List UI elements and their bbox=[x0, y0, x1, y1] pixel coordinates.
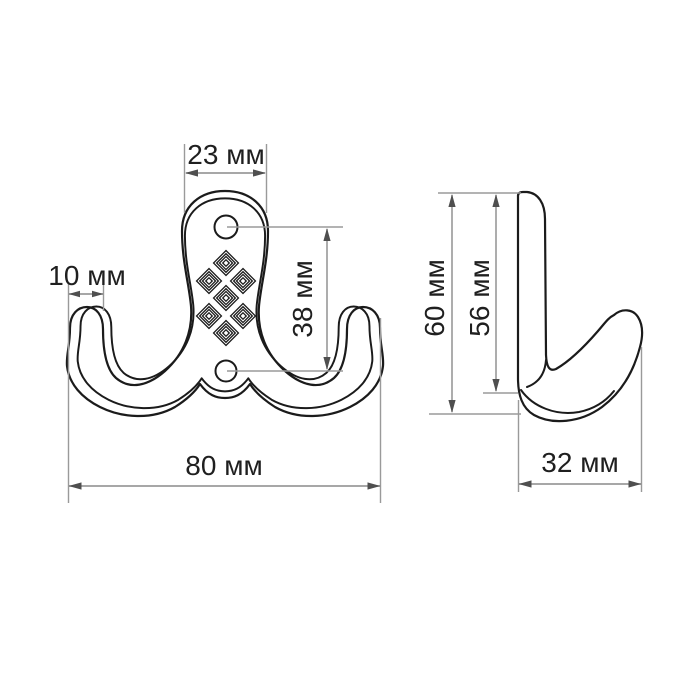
side-view-outline bbox=[518, 192, 642, 421]
label-inner-height: 56 мм bbox=[464, 259, 496, 336]
technical-drawing: 23 мм 10 мм 38 мм 80 мм 60 мм 56 мм 32 м… bbox=[0, 0, 700, 700]
label-depth: 32 мм bbox=[541, 447, 618, 479]
label-plate-width: 23 мм bbox=[187, 139, 264, 171]
front-view bbox=[67, 191, 383, 416]
label-total-width: 80 мм bbox=[185, 450, 262, 482]
side-view bbox=[518, 192, 642, 421]
drawing-svg bbox=[0, 0, 700, 700]
label-tip-width: 10 мм bbox=[48, 260, 125, 292]
label-total-height: 60 мм bbox=[419, 259, 451, 336]
label-hole-spacing: 38 мм bbox=[287, 260, 319, 337]
